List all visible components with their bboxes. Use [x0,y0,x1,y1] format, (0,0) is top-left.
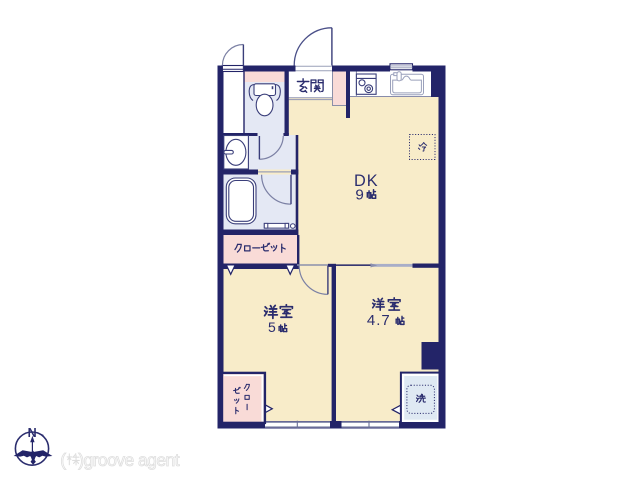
svg-text:5: 5 [268,319,276,335]
svg-text:(: ( [60,450,66,470]
svg-text:)groove agent: )groove agent [78,450,180,470]
svg-text:9: 9 [355,187,363,204]
svg-text:4.7: 4.7 [367,312,391,329]
